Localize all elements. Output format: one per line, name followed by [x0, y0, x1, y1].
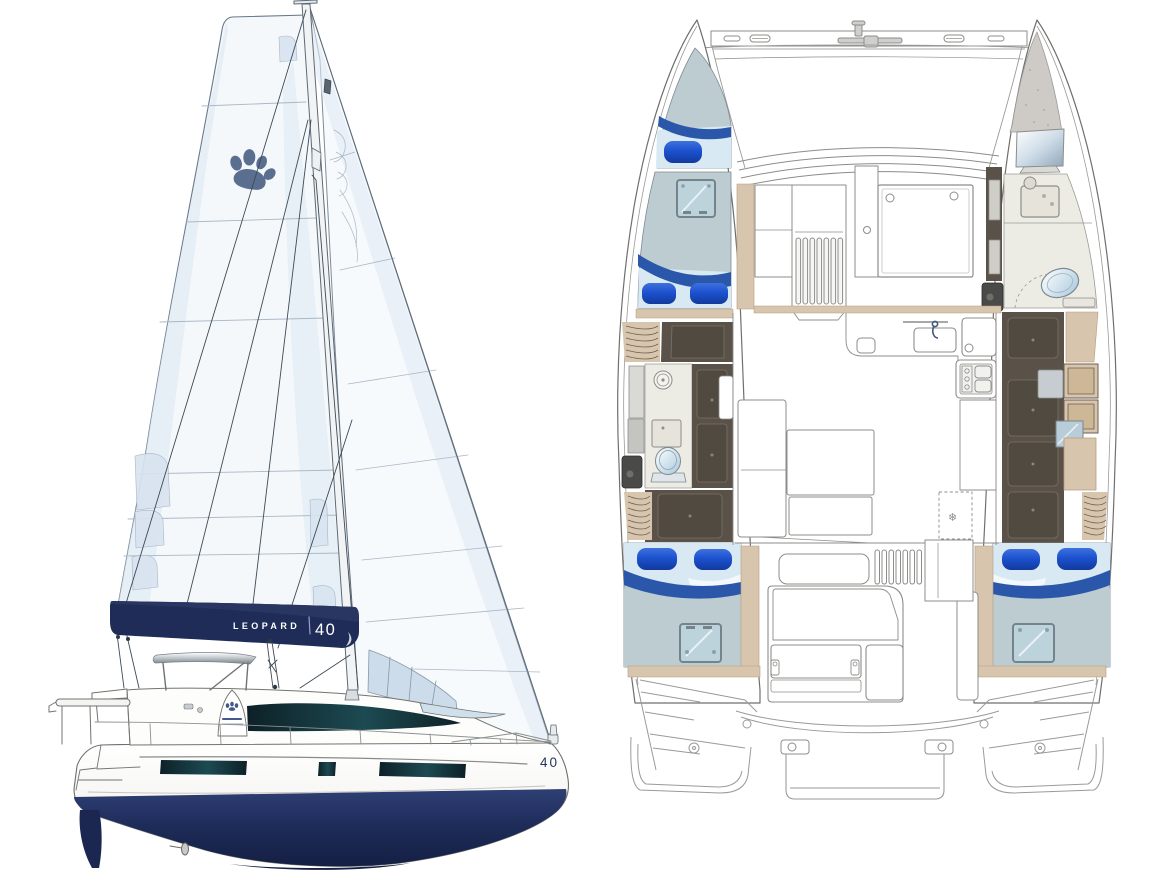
svg-text:40: 40	[540, 755, 559, 770]
svg-text:LEOPARD: LEOPARD	[233, 621, 300, 631]
svg-text:40: 40	[315, 621, 336, 639]
svg-text:❄: ❄	[948, 512, 957, 524]
